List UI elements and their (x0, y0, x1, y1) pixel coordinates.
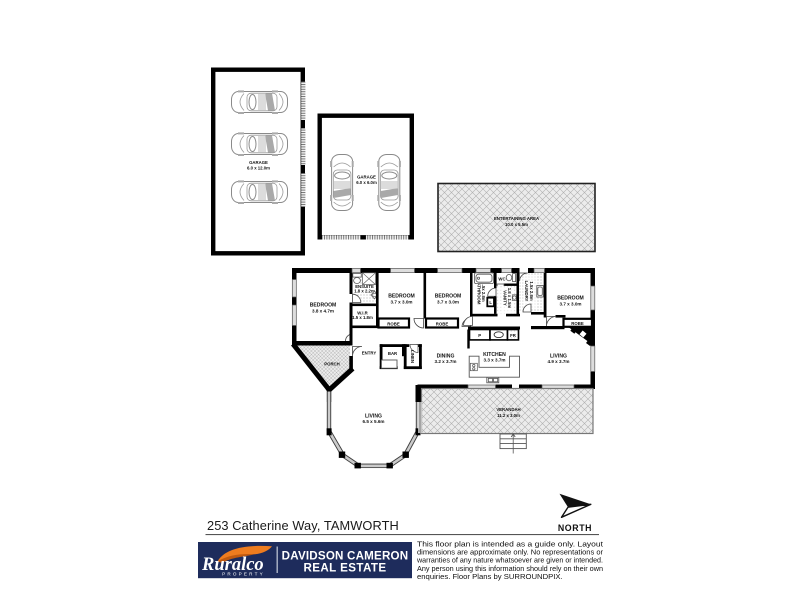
svg-text:GARAGE: GARAGE (357, 175, 376, 180)
svg-text:3.7 x 3.0m: 3.7 x 3.0m (391, 300, 413, 305)
svg-text:P: P (478, 333, 481, 338)
svg-text:253 Catherine Way, TAMWORTH: 253 Catherine Way, TAMWORTH (207, 518, 399, 533)
svg-text:REAL ESTATE: REAL ESTATE (304, 562, 387, 575)
svg-text:VERANDAH: VERANDAH (496, 407, 520, 412)
svg-text:L: L (489, 300, 492, 305)
svg-text:BAR: BAR (388, 351, 398, 356)
svg-text:1.5x 2.8m: 1.5x 2.8m (481, 282, 486, 302)
svg-text:4.9 x 3.7m: 4.9 x 3.7m (548, 359, 570, 364)
svg-text:WC: WC (498, 277, 505, 282)
svg-text:PORCH: PORCH (324, 362, 340, 367)
svg-text:ENTRY: ENTRY (362, 351, 377, 356)
svg-text:11.2 x 3.0m: 11.2 x 3.0m (497, 413, 520, 418)
svg-text:6.5 x 5.6m: 6.5 x 5.6m (363, 419, 385, 424)
svg-text:FR: FR (510, 333, 517, 338)
svg-text:PROPERTY: PROPERTY (222, 572, 265, 577)
svg-text:1.8 x 1.5m: 1.8 x 1.5m (507, 288, 512, 309)
svg-text:6.0 x 12.0m: 6.0 x 12.0m (247, 166, 270, 171)
svg-text:1.5 x 1.8m: 1.5 x 1.8m (352, 315, 373, 320)
svg-text:GARAGE: GARAGE (249, 160, 268, 165)
svg-text:LINEN: LINEN (410, 350, 415, 363)
svg-text:NORTH: NORTH (558, 523, 592, 533)
svg-text:3.2 x 3.7m: 3.2 x 3.7m (435, 359, 457, 364)
svg-text:3.7 x 3.0m: 3.7 x 3.0m (560, 302, 582, 307)
svg-text:1.5x 2.8m: 1.5x 2.8m (529, 281, 534, 301)
svg-text:ROBE: ROBE (387, 321, 400, 326)
svg-text:LAUNDRY: LAUNDRY (524, 281, 529, 302)
svg-text:VANITY: VANITY (502, 290, 507, 306)
svg-text:ROBE: ROBE (436, 321, 449, 326)
svg-text:enquiries. Floor Plans by SUR: enquiries. Floor Plans by SURROUNDPIX. (417, 572, 563, 581)
svg-text:3.3 x 3.7m: 3.3 x 3.7m (484, 358, 506, 363)
svg-text:10.0 x 5.5m: 10.0 x 5.5m (505, 222, 528, 227)
svg-text:3.8 x 4.7m: 3.8 x 4.7m (312, 309, 334, 314)
svg-text:ROBE: ROBE (571, 321, 584, 326)
svg-text:1.8 x 2.2m: 1.8 x 2.2m (354, 289, 375, 294)
svg-text:3.7 x 3.0m: 3.7 x 3.0m (437, 300, 459, 305)
svg-text:ENTERTAINING AREA: ENTERTAINING AREA (494, 216, 539, 221)
svg-text:6.0 x 6.0m: 6.0 x 6.0m (356, 180, 377, 185)
